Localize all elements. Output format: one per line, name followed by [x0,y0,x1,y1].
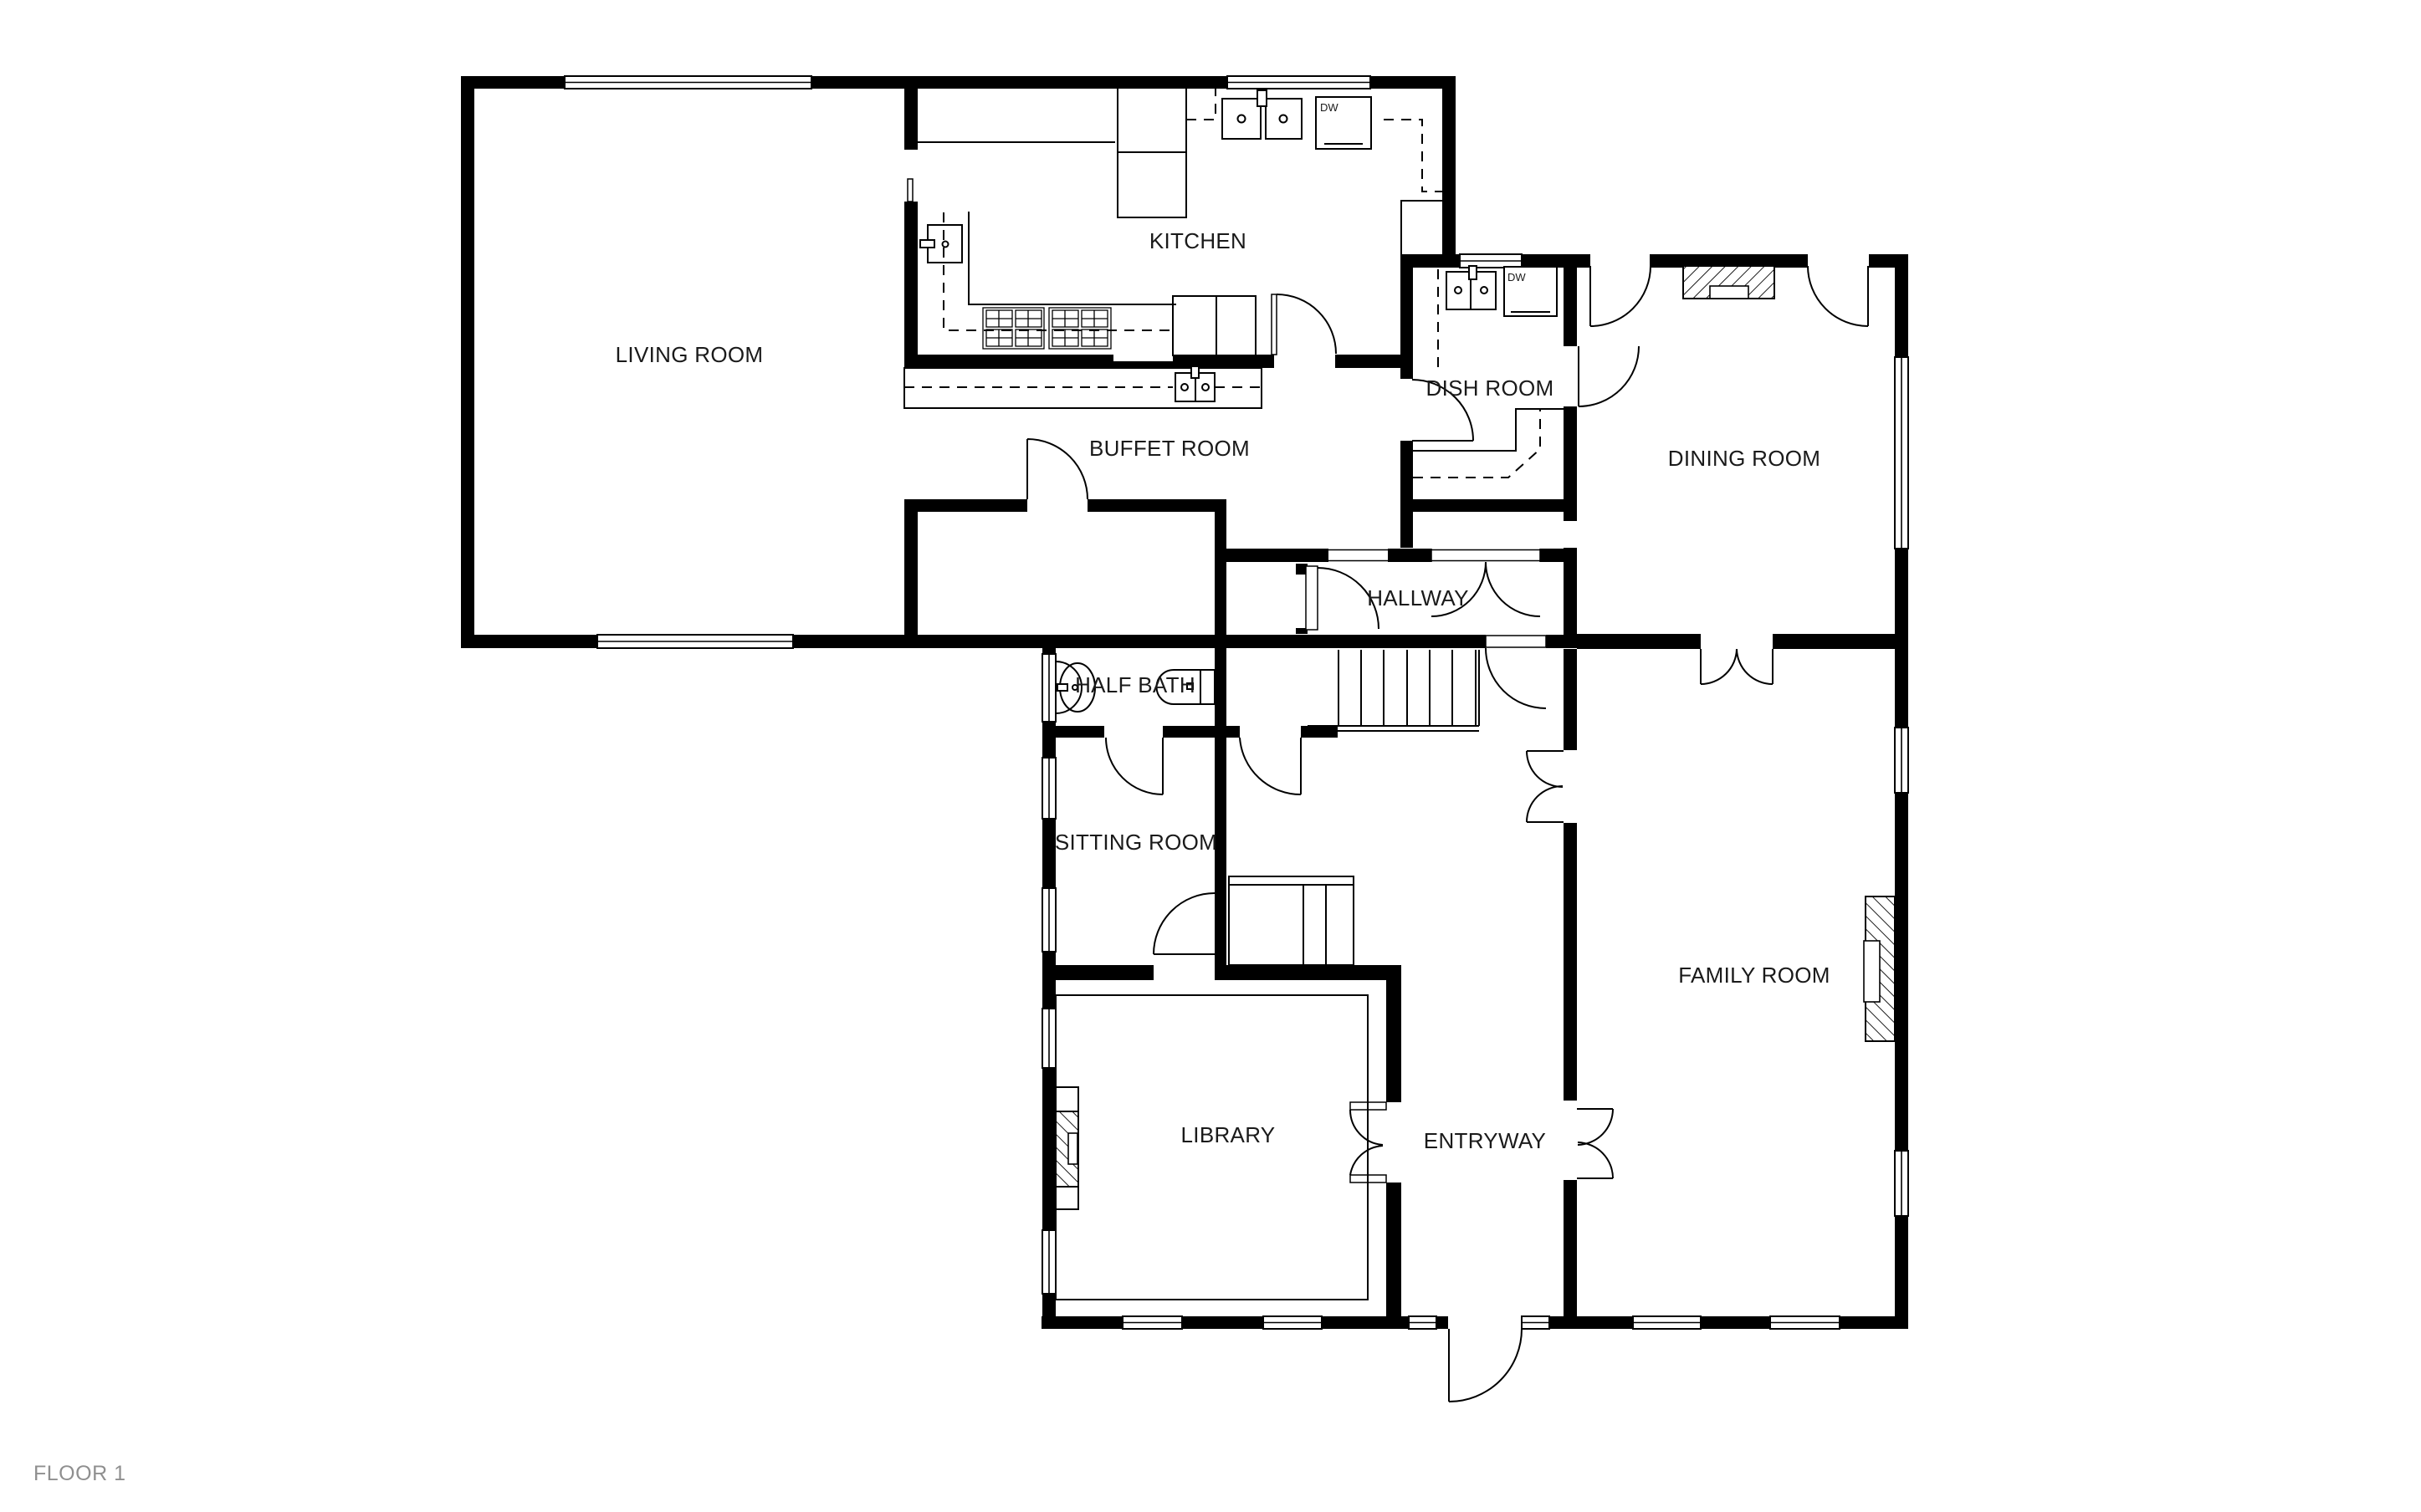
svg-text:DISH ROOM: DISH ROOM [1426,375,1554,401]
svg-text:DW: DW [1507,271,1526,283]
svg-text:LIBRARY: LIBRARY [1181,1122,1276,1147]
svg-text:FAMILY ROOM: FAMILY ROOM [1678,963,1830,988]
svg-text:BUFFET ROOM: BUFFET ROOM [1089,436,1250,461]
svg-text:DINING ROOM: DINING ROOM [1668,446,1820,471]
svg-text:KITCHEN: KITCHEN [1149,228,1246,253]
svg-text:FLOOR 1: FLOOR 1 [33,1462,125,1485]
svg-text:DW: DW [1320,101,1338,114]
svg-text:SITTING ROOM: SITTING ROOM [1055,830,1217,855]
svg-text:HALF BATH: HALF BATH [1075,672,1195,697]
svg-text:LIVING ROOM: LIVING ROOM [616,342,764,367]
svg-text:HALLWAY: HALLWAY [1367,585,1469,610]
svg-text:ENTRYWAY: ENTRYWAY [1424,1128,1546,1153]
